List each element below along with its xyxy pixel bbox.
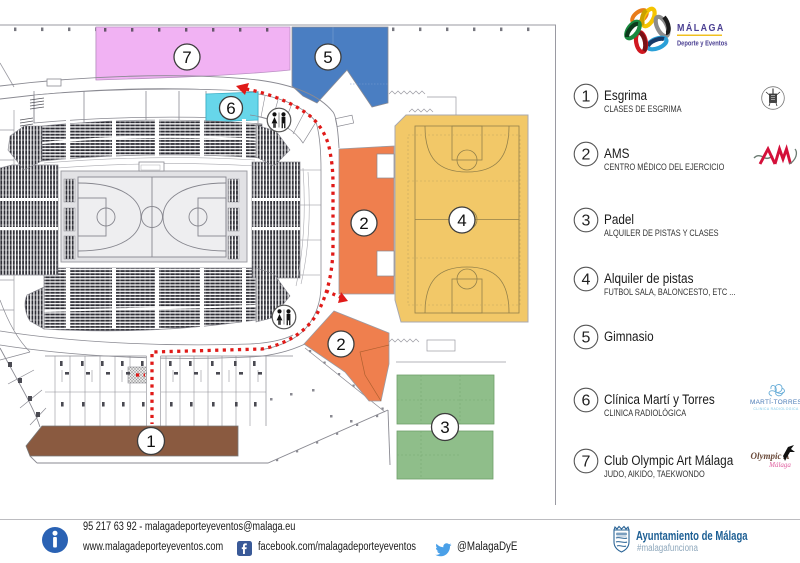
svg-text:2: 2 — [582, 147, 591, 164]
svg-text:MARTÍ-TORRES: MARTÍ-TORRES — [750, 397, 800, 406]
svg-text:Deporte y Eventos: Deporte y Eventos — [677, 40, 728, 48]
svg-text:5: 5 — [323, 48, 332, 67]
svg-text:Málaga: Málaga — [768, 461, 791, 469]
svg-text:CLINICA RADIOLOGICA: CLINICA RADIOLOGICA — [753, 407, 799, 411]
svg-text:7: 7 — [182, 48, 191, 67]
svg-text:7: 7 — [582, 454, 591, 471]
svg-text:3: 3 — [440, 418, 449, 437]
svg-text:4: 4 — [582, 272, 591, 289]
svg-text:4: 4 — [457, 211, 466, 230]
svg-text:1: 1 — [146, 432, 155, 451]
svg-text:MÁLAGA: MÁLAGA — [677, 22, 725, 34]
svg-text:2: 2 — [359, 214, 368, 233]
svg-text:1: 1 — [582, 89, 591, 106]
svg-text:2: 2 — [336, 335, 345, 354]
svg-text:6: 6 — [582, 393, 591, 410]
svg-text:3: 3 — [582, 213, 591, 230]
svg-text:6: 6 — [226, 99, 235, 118]
svg-text:5: 5 — [582, 330, 591, 347]
